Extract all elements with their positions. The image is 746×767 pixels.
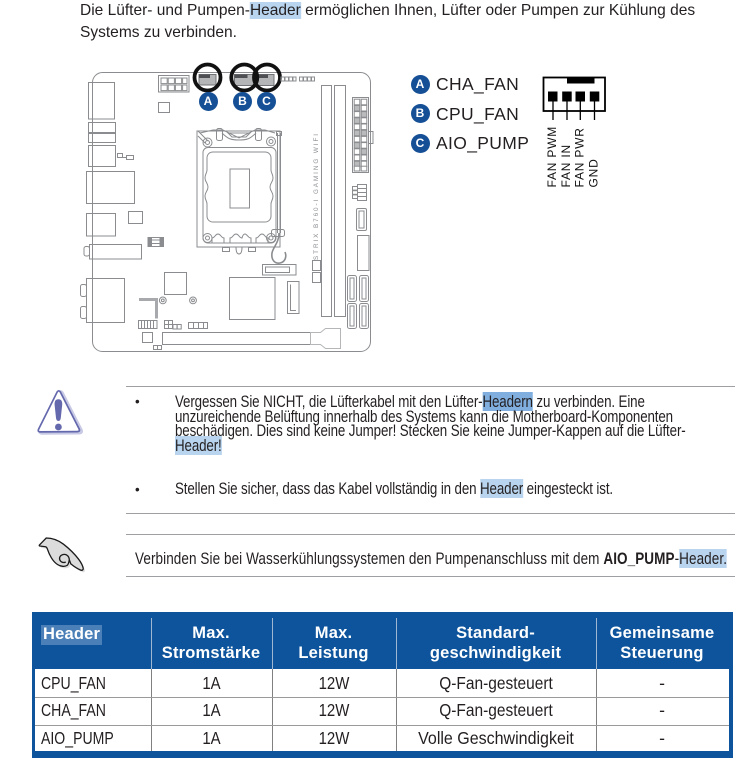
svg-text:FAN PWM: FAN PWM	[545, 126, 559, 188]
svg-text:FAN IN: FAN IN	[559, 144, 573, 187]
svg-text:STRIX B760-I GAMING WIFI: STRIX B760-I GAMING WIFI	[313, 132, 320, 260]
svg-text:GND: GND	[587, 158, 601, 187]
svg-text:FAN PWR: FAN PWR	[572, 127, 586, 187]
